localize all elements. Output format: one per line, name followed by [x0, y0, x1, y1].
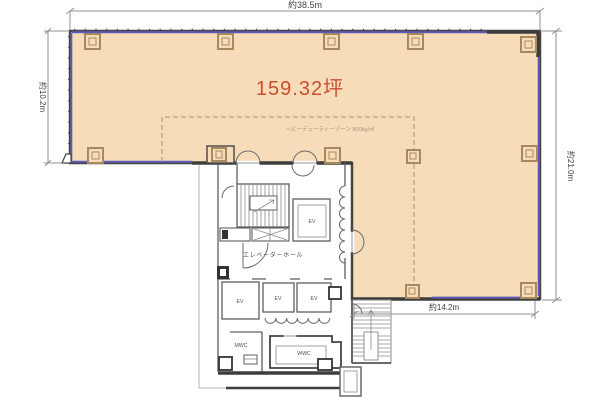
core: EV エレベーターホール EV EV EV MWC [199, 163, 360, 388]
staircase [222, 184, 289, 227]
elevator-1-label: EV [237, 299, 244, 305]
womens-toilet-label: WWC [297, 351, 311, 357]
mens-toilet: MWC [230, 332, 262, 372]
elevator-2-label: EV [275, 296, 282, 302]
service-elevator: EV [293, 199, 330, 241]
elevator-hall-label: エレベーターホール [243, 251, 303, 259]
floor-plan-page: ヘビーデューティーゾーン 800kg/㎡ 159.32坪 [0, 0, 600, 405]
heavy-duty-zone-label: ヘビーデューティーゾーン 800kg/㎡ [286, 125, 375, 133]
floor-area-label: 159.32坪 [256, 77, 344, 100]
dimension-left-label: 約10.2m [38, 82, 48, 113]
elevator-hall: エレベーターホール [217, 243, 332, 279]
dimension-bottom-label: 約14.2m [429, 302, 460, 312]
dimension-top-label: 約38.5m [288, 0, 322, 10]
mens-toilet-label: MWC [235, 343, 248, 349]
elevator-bank: EV EV EV [222, 282, 341, 323]
dimension-right-label: 約21.0m [566, 151, 576, 182]
floor-plan: ヘビーデューティーゾーン 800kg/㎡ 159.32坪 [0, 0, 600, 405]
service-elevator-label: EV [309, 219, 316, 225]
elevator-3-label: EV [311, 296, 318, 302]
machine-rooms [220, 228, 289, 241]
shutter-louver [340, 186, 345, 263]
